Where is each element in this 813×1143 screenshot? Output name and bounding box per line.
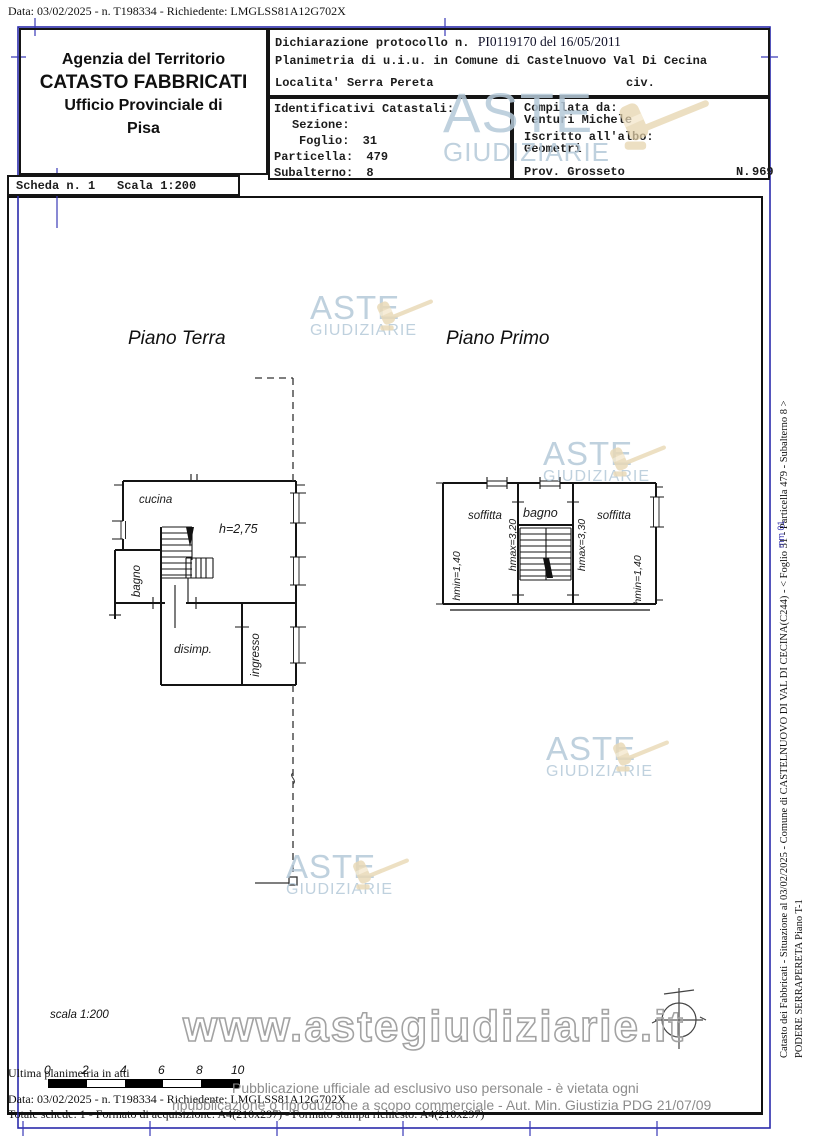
- scalebar-label-0: 0: [44, 1063, 51, 1077]
- identificativi-title: Identificativi Catastali:: [274, 102, 454, 116]
- particella-label: Particella:: [274, 150, 353, 164]
- room-label-ingresso: ingresso: [250, 633, 262, 676]
- side-text-line2: PODERE SERRAPERETA Piano T-1: [794, 899, 805, 1058]
- agency-line4: Pisa: [21, 117, 266, 140]
- subalterno-value: 8: [366, 166, 373, 180]
- disclaimer-line1: Pubblicazione ufficiale ad esclusivo uso…: [232, 1080, 639, 1096]
- agency-line2: CATASTO FABBRICATI: [21, 71, 266, 94]
- scalebar-label-4: 4: [120, 1063, 127, 1077]
- sezione-row: Sezione:: [292, 118, 350, 132]
- floor-title-ground: Piano Terra: [128, 328, 226, 350]
- label-hmin-right: hmin=1,40: [632, 555, 644, 604]
- agency-line1: Agenzia del Territorio: [21, 48, 266, 71]
- label-hmin-left: hmin=1,40: [451, 551, 463, 600]
- subalterno-label: Subalterno:: [274, 166, 353, 180]
- cadastral-document-page: Data: 03/02/2025 - n. T198334 - Richiede…: [0, 0, 813, 1143]
- disclaimer-line2: ripubblicazione o riproduzione a scopo c…: [172, 1097, 711, 1113]
- agency-line3: Ufficio Provinciale di: [21, 94, 266, 117]
- scala-label: Scala 1:200: [117, 179, 196, 193]
- top-meta-line: Data: 03/02/2025 - n. T198334 - Richiede…: [8, 4, 346, 19]
- particella-value: 479: [366, 150, 388, 164]
- drawing-frame: [7, 196, 763, 1115]
- label-hmax-right: hmax=3,30: [576, 519, 588, 571]
- scalebar-label-10: 10: [231, 1063, 244, 1077]
- scalebar-label-2: 2: [82, 1063, 89, 1077]
- room-label-disimp: disimp.: [174, 642, 212, 656]
- planimetria-line: Planimetria di u.i.u. in Comune di Caste…: [275, 54, 707, 68]
- n-label: N.: [736, 165, 750, 179]
- label-hmax-left: hmax=3,20: [507, 519, 519, 571]
- floor-title-first: Piano Primo: [446, 328, 550, 350]
- particella-row: Particella: 479: [274, 150, 388, 164]
- foglio-value: 31: [363, 134, 377, 148]
- foglio-row: Foglio: 31: [299, 134, 377, 148]
- scalebar-strip: [48, 1079, 240, 1088]
- agency-header-box: Agenzia del Territorio CATASTO FABBRICAT…: [19, 28, 268, 175]
- scheda-box: Scheda n. 1 Scala 1:200: [7, 175, 240, 196]
- protocol-stamp: PI0119170 del 16/05/2011: [478, 34, 621, 49]
- subalterno-row: Subalterno: 8: [274, 166, 374, 180]
- scheda-label: Scheda n. 1: [16, 179, 95, 193]
- side-text-line1: Catasto dei Fabbricati - Situazione al 0…: [779, 400, 790, 1058]
- dichiarazione-prefix: Dichiarazione protocollo n.: [275, 36, 469, 50]
- side-blue-mark: mm 01: [776, 520, 786, 548]
- scala-note: scala 1:200: [50, 1009, 109, 1021]
- localita-line: Localita' Serra Pereta: [275, 76, 433, 90]
- dichiarazione-box: Dichiarazione protocollo n. PI0119170 de…: [268, 28, 770, 97]
- albo-value: Geometri: [524, 142, 582, 156]
- scalebar-label-8: 8: [196, 1063, 203, 1077]
- compilata-box: Compilata da: Venturi Michele Iscritto a…: [512, 97, 770, 180]
- civ-label: civ.: [626, 76, 655, 90]
- identificativi-box: Identificativi Catastali: Sezione: Fogli…: [268, 97, 512, 180]
- foglio-label: Foglio:: [299, 134, 349, 148]
- room-label-bagno-ground: bagno: [131, 565, 143, 597]
- room-label-height: h=2,75: [219, 522, 258, 536]
- room-label-bagno-first: bagno: [523, 506, 558, 520]
- scalebar-label-6: 6: [158, 1063, 165, 1077]
- room-label-soffitta-left: soffitta: [468, 510, 502, 522]
- n-value: 969: [752, 165, 774, 179]
- room-label-cucina: cucina: [139, 494, 172, 506]
- compilata-name: Venturi Michele: [524, 113, 632, 127]
- room-label-soffitta-right: soffitta: [597, 510, 631, 522]
- prov-label: Prov. Grosseto: [524, 165, 625, 179]
